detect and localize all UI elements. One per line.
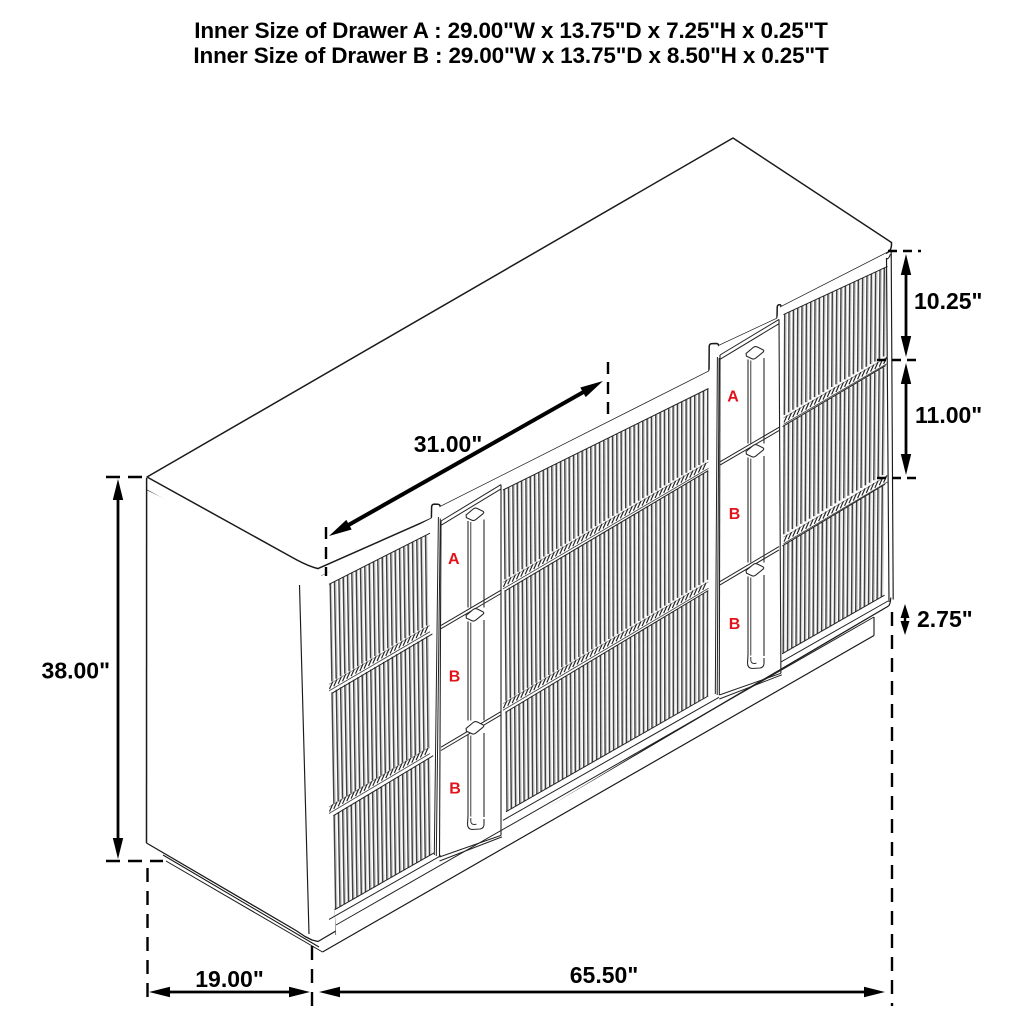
svg-text:2.75": 2.75" (917, 606, 973, 632)
svg-text:B: B (729, 616, 741, 633)
svg-text:B: B (449, 781, 461, 798)
svg-text:38.00": 38.00" (42, 658, 110, 684)
svg-text:65.50": 65.50" (570, 962, 638, 988)
svg-text:B: B (729, 506, 741, 523)
svg-text:31.00": 31.00" (414, 431, 482, 457)
svg-text:Inner Size of Drawer B : 29.00: Inner Size of Drawer B : 29.00"W x 13.75… (193, 43, 829, 68)
svg-text:A: A (448, 551, 460, 568)
svg-text:A: A (727, 389, 739, 406)
svg-text:10.25": 10.25" (914, 288, 982, 314)
svg-text:B: B (449, 669, 461, 686)
svg-text:Inner Size of Drawer A : 29.00: Inner Size of Drawer A : 29.00"W x 13.75… (194, 18, 828, 43)
svg-text:19.00": 19.00" (195, 966, 263, 992)
svg-text:11.00": 11.00" (915, 402, 982, 428)
